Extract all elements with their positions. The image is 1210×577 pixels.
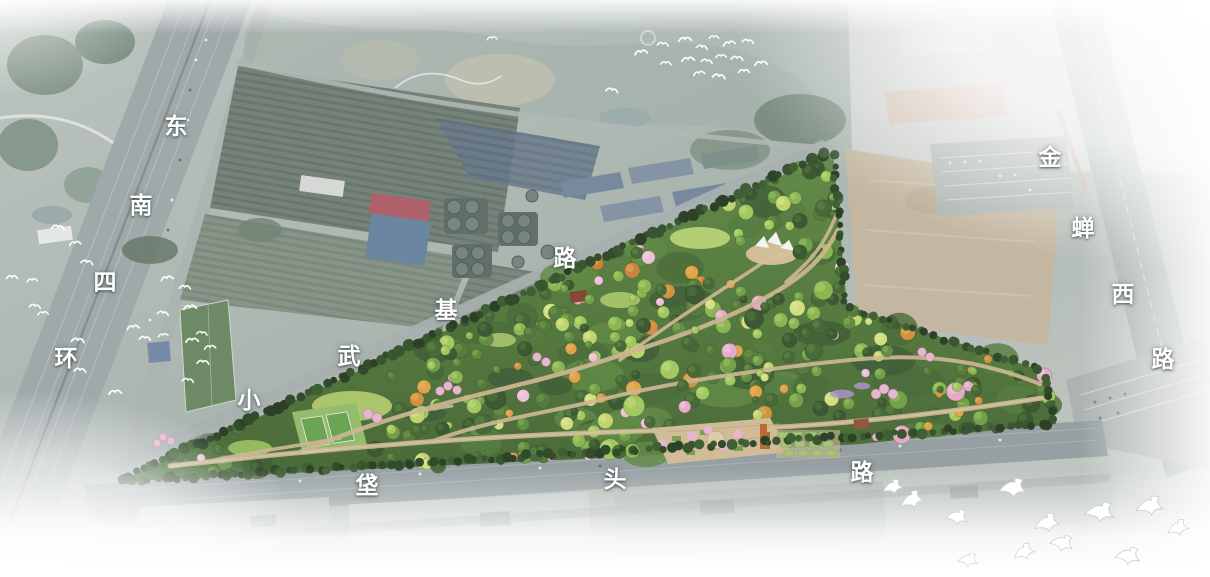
parking-lot-northeast: [930, 136, 1074, 216]
aerial-masterplan-image: 东南四环小武基路垡头路金蝉西路: [0, 0, 1210, 577]
scene-canvas: [0, 0, 1210, 577]
pool-basin: [147, 341, 171, 363]
blue-roof-building: [365, 214, 431, 266]
tree-mass-north: [754, 94, 846, 146]
pavilion: [854, 418, 870, 430]
